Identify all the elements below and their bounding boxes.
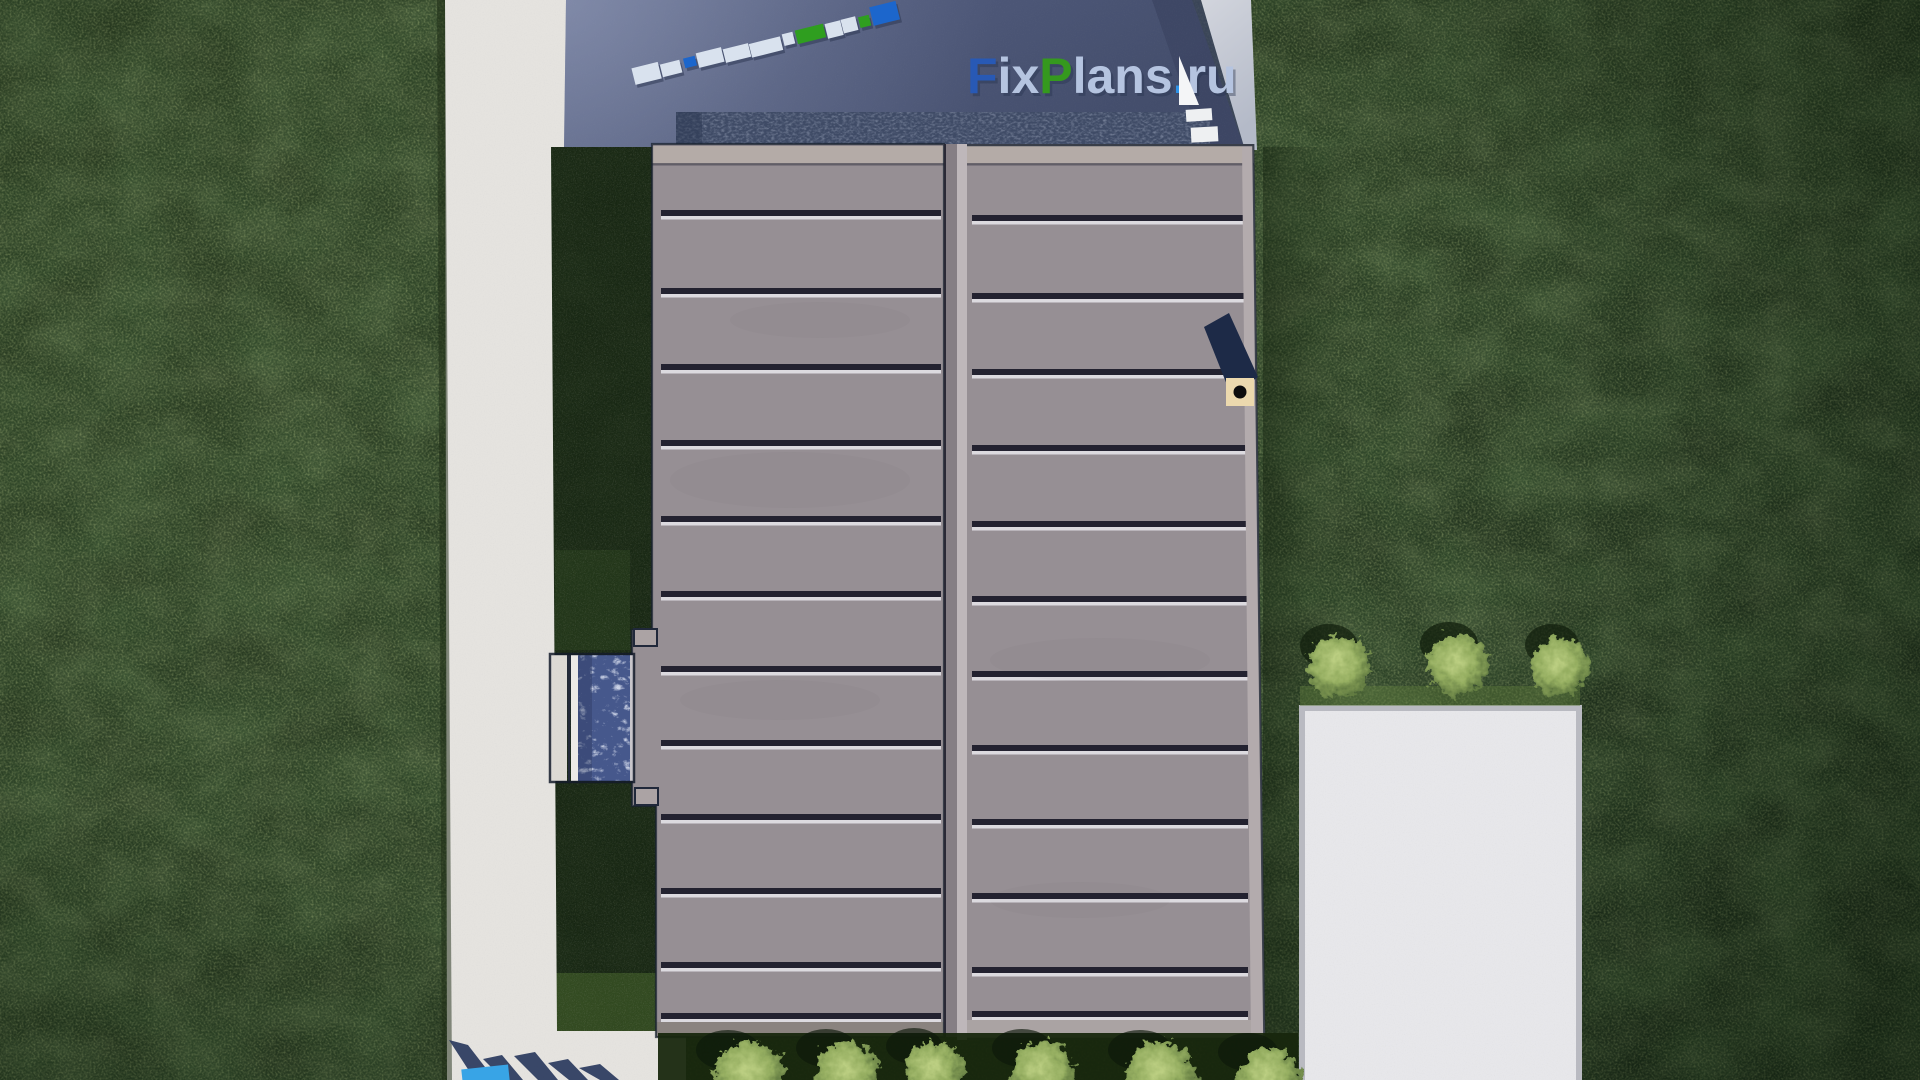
svg-text:FixPlans.ru: FixPlans.ru: [967, 48, 1237, 104]
